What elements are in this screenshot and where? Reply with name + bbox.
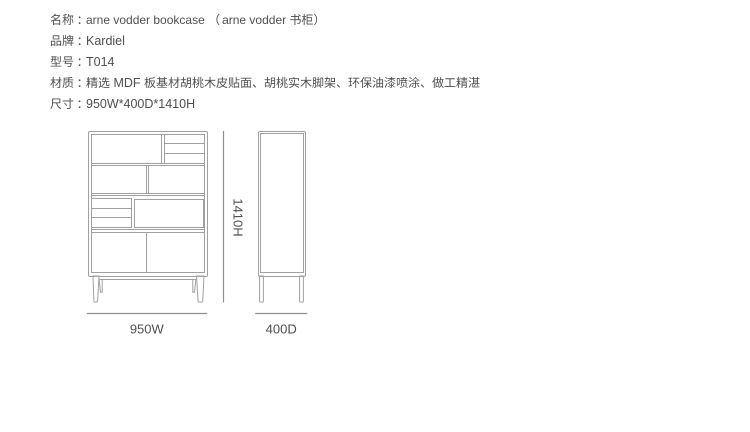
svg-text:950W: 950W: [130, 322, 165, 337]
svg-text:T014: T014: [86, 55, 115, 69]
svg-text:arne vodder bookcase: arne vodder bookcase: [86, 13, 205, 27]
svg-text:950W*400D*1410H: 950W*400D*1410H: [86, 97, 195, 111]
svg-text:400D: 400D: [266, 322, 297, 337]
svg-text:Kardiel: Kardiel: [86, 34, 125, 48]
svg-text:1410H: 1410H: [230, 198, 245, 236]
svg-text:arne vodder: arne vodder: [222, 13, 286, 27]
svg-text:MDF: MDF: [113, 76, 140, 90]
